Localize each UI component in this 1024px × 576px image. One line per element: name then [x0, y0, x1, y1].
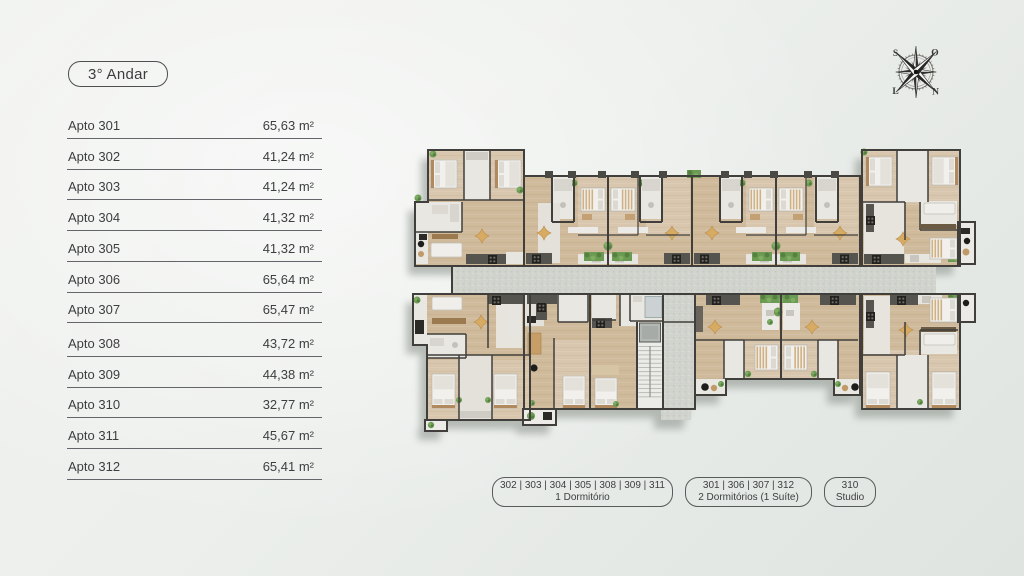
- svg-text:O: O: [931, 49, 938, 59]
- svg-text:L: L: [892, 87, 898, 97]
- svg-text:N: N: [932, 88, 939, 98]
- svg-text:S: S: [893, 49, 898, 59]
